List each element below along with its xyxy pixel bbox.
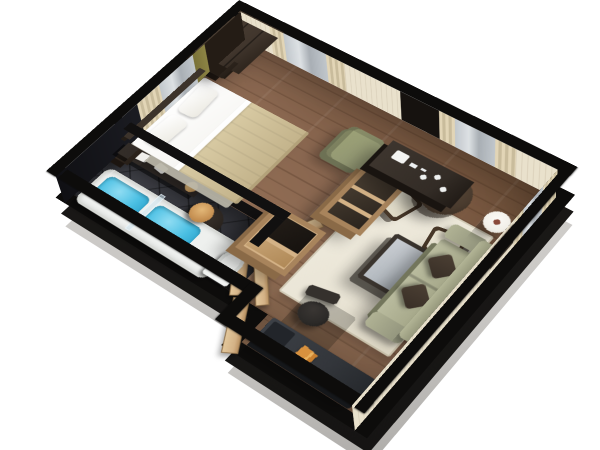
cup [433, 174, 443, 181]
coffee-machine [390, 150, 410, 164]
double-bed [131, 77, 309, 204]
apartment-plan [29, 28, 575, 439]
pillow [176, 84, 220, 119]
olive-accent-panel [193, 44, 210, 83]
dark-niche [400, 91, 440, 139]
bedroom-window [283, 33, 329, 83]
scene-3d [0, 0, 600, 450]
wall-top-north [231, 0, 577, 176]
floorplan-render [0, 0, 600, 450]
bedroom-side-window [159, 55, 198, 113]
wall-top-west [46, 0, 248, 177]
wall-panel [344, 63, 402, 119]
lamp-bulb [492, 218, 502, 226]
wardrobe-backwall [204, 12, 245, 72]
curtain [326, 54, 347, 92]
wardrobe-door-seam [208, 17, 255, 59]
curtain [439, 111, 455, 147]
wardrobe-door-seam [223, 25, 270, 67]
nightstand [107, 140, 143, 166]
sheet-fold [174, 100, 252, 171]
cup [438, 186, 448, 193]
curtain [137, 85, 165, 132]
bed-headboard [123, 67, 206, 139]
bathroom-counter [117, 143, 205, 198]
wall-panel [241, 12, 274, 55]
towel [132, 150, 151, 162]
curtain [269, 26, 287, 61]
towel [153, 162, 169, 174]
cup [418, 174, 428, 181]
scene-orientation [0, 0, 600, 450]
gold-accessory [182, 180, 201, 194]
nightstand [202, 53, 239, 78]
west-wall-face [56, 12, 245, 204]
pillow [143, 113, 190, 149]
wardrobe [195, 10, 285, 74]
